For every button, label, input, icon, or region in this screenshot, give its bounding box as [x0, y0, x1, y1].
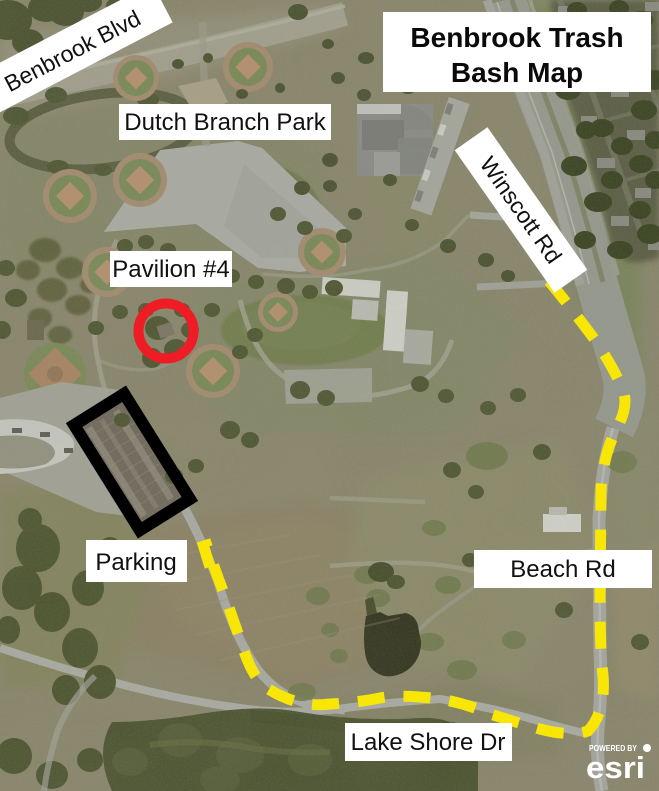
- svg-text:esri: esri: [586, 750, 645, 785]
- svg-text:Benbrook Trash: Benbrook Trash: [410, 22, 623, 53]
- svg-text:Bash Map: Bash Map: [451, 57, 583, 88]
- svg-text:Pavilion #4: Pavilion #4: [112, 256, 229, 283]
- svg-text:Beach Rd: Beach Rd: [510, 556, 615, 583]
- svg-text:Dutch Branch Park: Dutch Branch Park: [124, 109, 326, 136]
- svg-text:Lake Shore Dr: Lake Shore Dr: [351, 729, 506, 756]
- svg-text:Parking: Parking: [95, 549, 176, 576]
